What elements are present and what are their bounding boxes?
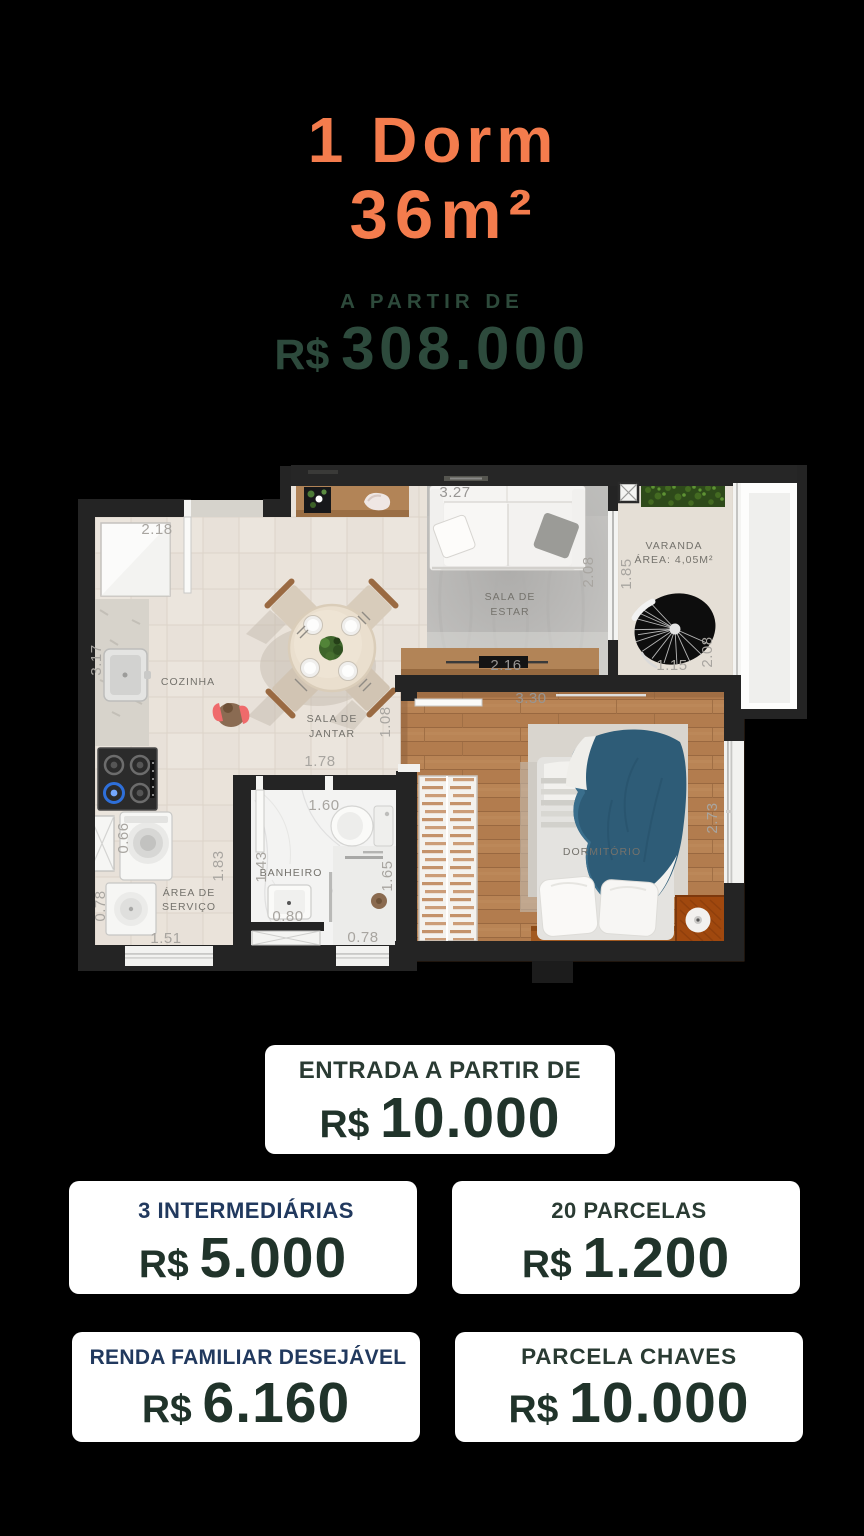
svg-text:1.08: 1.08 [377,706,394,737]
svg-text:ENTRADA A PARTIR DE: ENTRADA A PARTIR DE [299,1057,581,1084]
svg-text:1.85: 1.85 [618,558,635,589]
svg-text:20 PARCELAS: 20 PARCELAS [551,1198,706,1223]
svg-text:1.43: 1.43 [253,851,270,882]
svg-text:SERVIÇO: SERVIÇO [162,901,216,913]
svg-text:3.30: 3.30 [515,690,546,707]
svg-text:ESTAR: ESTAR [490,606,529,618]
svg-text:0.80: 0.80 [272,908,303,925]
svg-text:2.08: 2.08 [580,556,597,587]
svg-text:2.16: 2.16 [490,657,521,674]
svg-text:JANTAR: JANTAR [309,728,355,740]
svg-text:SALA DE: SALA DE [485,591,536,603]
svg-text:RENDA FAMILIAR DESEJÁVEL: RENDA FAMILIAR DESEJÁVEL [90,1346,407,1369]
svg-text:VARANDA: VARANDA [646,540,703,552]
svg-text:PARCELA CHAVES: PARCELA CHAVES [521,1344,737,1369]
svg-text:0.78: 0.78 [92,890,109,921]
svg-text:36m²: 36m² [349,176,538,253]
svg-text:1.83: 1.83 [210,850,227,881]
svg-text:1 Dorm: 1 Dorm [308,104,559,176]
svg-text:ÁREA DE: ÁREA DE [163,886,216,899]
svg-text:3.27: 3.27 [439,484,470,501]
svg-text:0.66: 0.66 [115,822,132,853]
svg-text:1.15: 1.15 [656,657,687,674]
svg-text:1.51: 1.51 [150,930,181,947]
svg-text:0.78: 0.78 [347,929,378,946]
svg-text:COZINHA: COZINHA [161,676,215,688]
svg-text:DORMITÓRIO: DORMITÓRIO [563,845,641,858]
svg-text:SALA DE: SALA DE [307,713,358,725]
svg-text:1.65: 1.65 [379,860,396,891]
svg-text:3 INTERMEDIÁRIAS: 3 INTERMEDIÁRIAS [138,1198,354,1223]
svg-text:2.73: 2.73 [704,802,721,833]
svg-text:1.78: 1.78 [304,753,335,770]
svg-text:ÁREA: 4,05M²: ÁREA: 4,05M² [634,553,713,566]
svg-text:3.17: 3.17 [88,644,105,675]
svg-text:2.08: 2.08 [699,636,716,667]
svg-text:A PARTIR DE: A PARTIR DE [340,290,524,313]
svg-text:1.60: 1.60 [308,797,339,814]
svg-text:2.18: 2.18 [141,521,172,538]
